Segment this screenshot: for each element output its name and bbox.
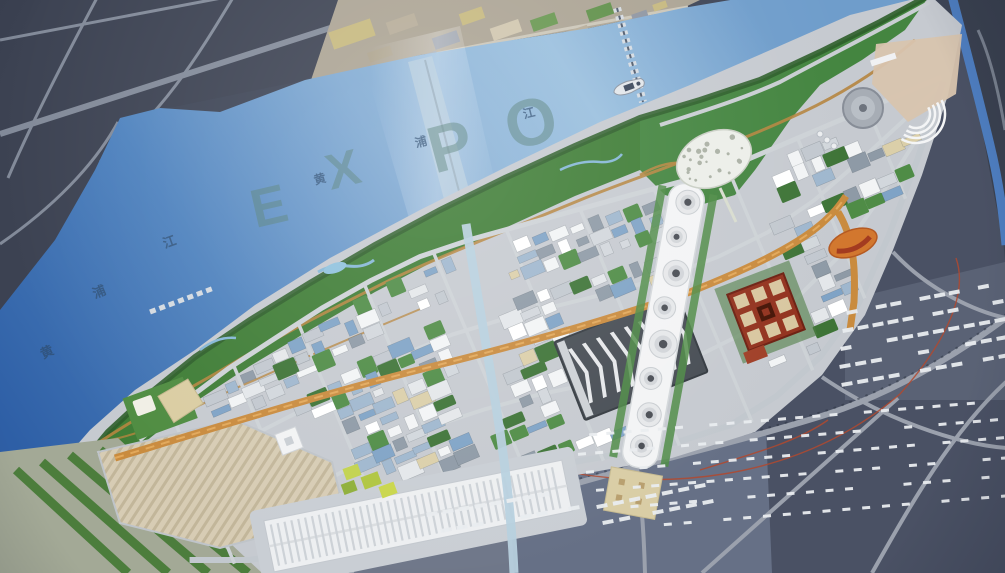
vignette xyxy=(0,0,1005,573)
map-canvas: E X P O 黄 浦 江 黄 浦 江 xyxy=(0,0,1005,573)
expo-site-aerial-map: E X P O 黄 浦 江 黄 浦 江 xyxy=(0,0,1005,573)
